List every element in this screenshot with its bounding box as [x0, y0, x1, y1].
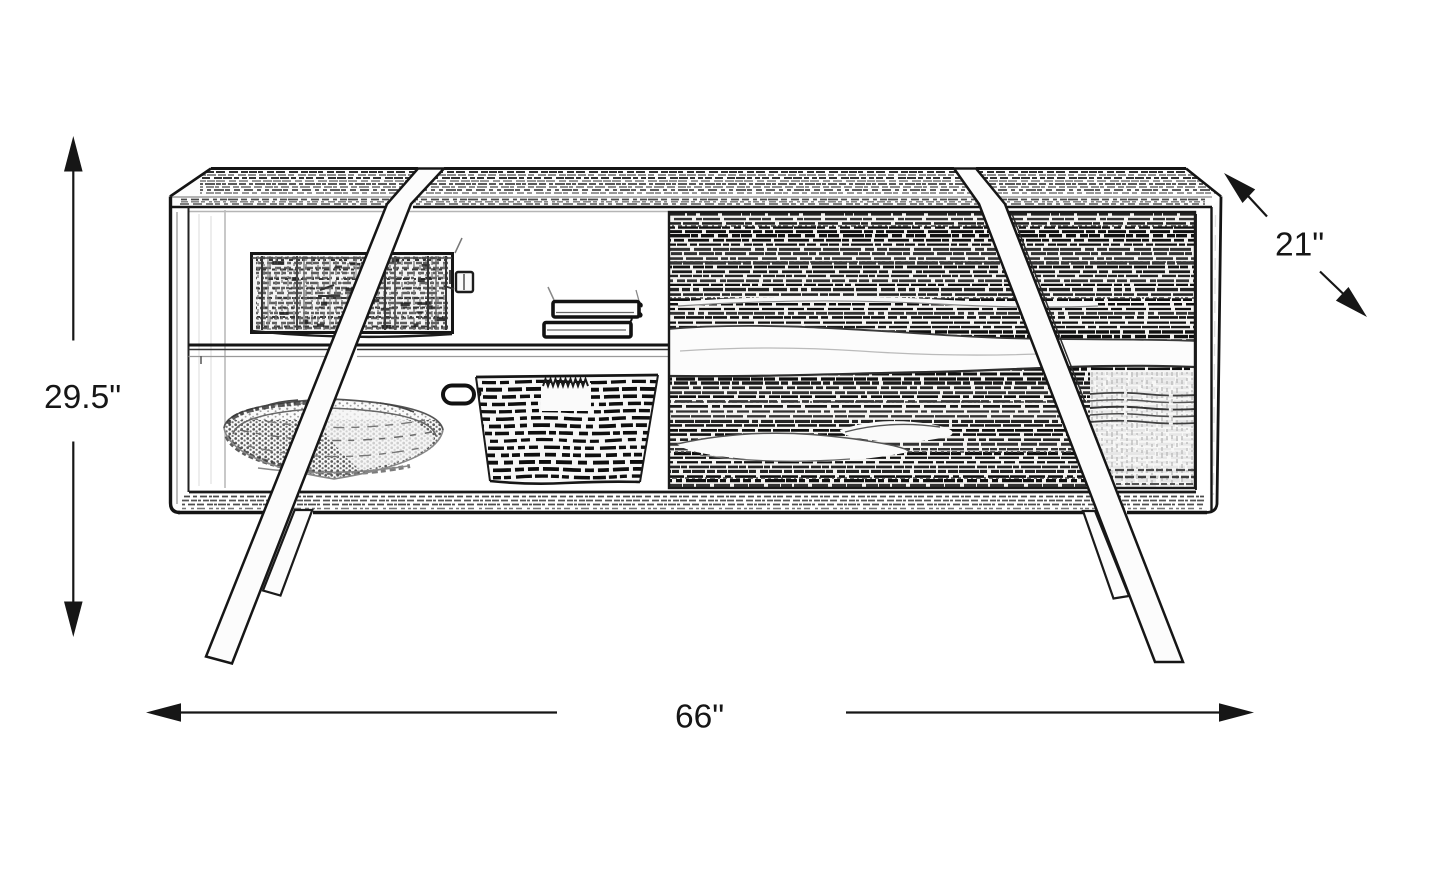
svg-text:66": 66": [675, 699, 724, 736]
svg-text:29.5": 29.5": [44, 379, 121, 416]
svg-text:21": 21": [1275, 227, 1324, 264]
